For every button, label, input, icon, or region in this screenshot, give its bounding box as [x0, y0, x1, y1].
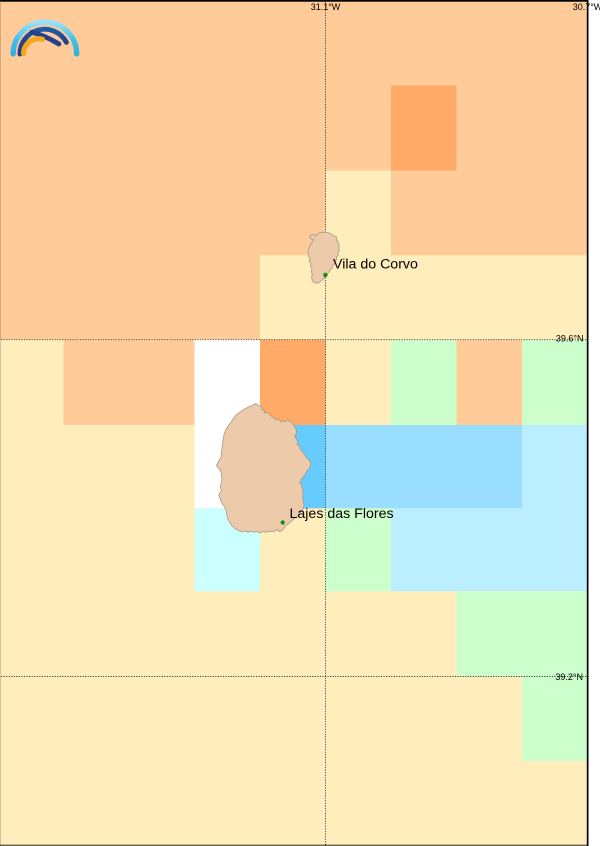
- svg-text:39.6°N: 39.6°N: [556, 334, 584, 344]
- svg-text:Lajes das Flores: Lajes das Flores: [290, 506, 394, 522]
- svg-text:31.1°W: 31.1°W: [311, 2, 341, 12]
- svg-text:30.7°W: 30.7°W: [573, 2, 600, 12]
- svg-text:39.2°N: 39.2°N: [555, 672, 583, 682]
- svg-text:Vila do Corvo: Vila do Corvo: [333, 257, 418, 273]
